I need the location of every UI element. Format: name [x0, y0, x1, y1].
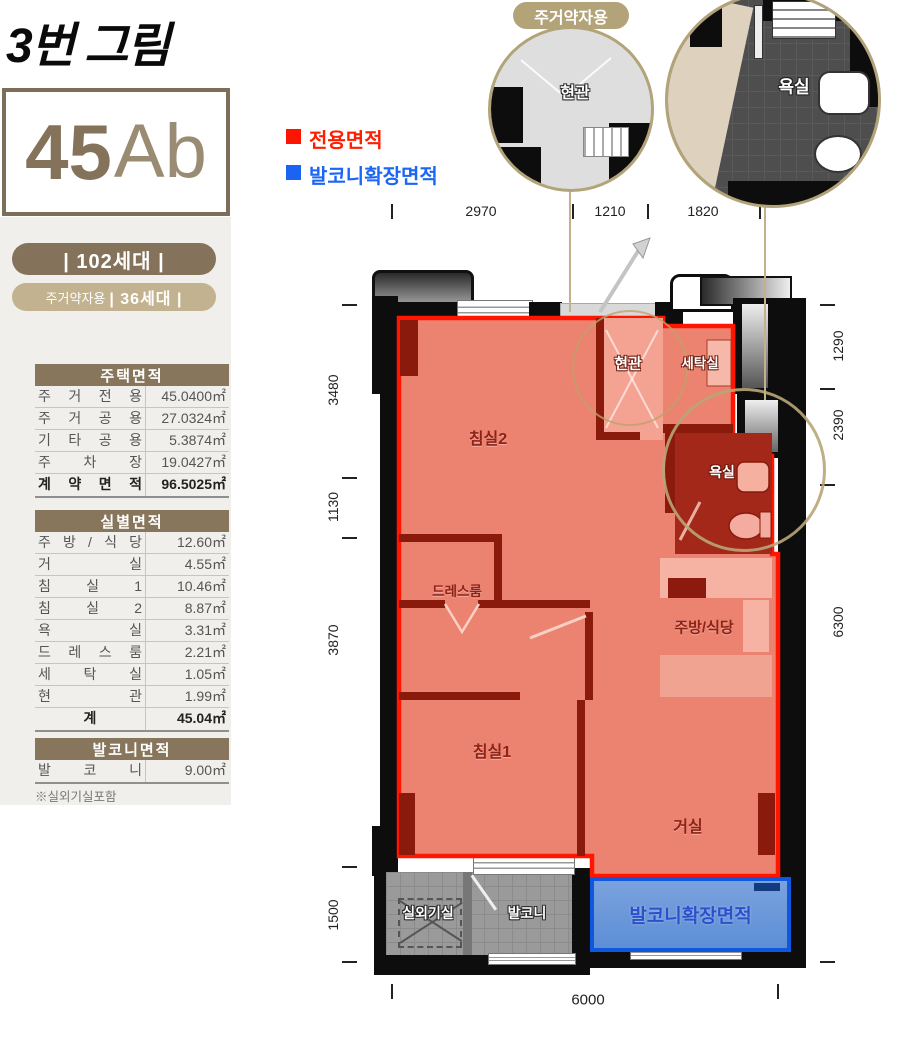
room-label-laundry: 세탁실: [681, 352, 718, 372]
callout-bath-label: 욕실: [778, 73, 809, 98]
room-label-bedroom2: 침실2: [469, 425, 507, 449]
wall: [491, 87, 523, 143]
entrance-callout-circle: 현관: [488, 26, 654, 192]
balcony-extension-label: 발코니확장면적: [629, 901, 751, 928]
bath-callout-circle: 욕실: [665, 0, 881, 208]
sink: [818, 71, 870, 115]
wall: [499, 147, 541, 191]
room-label-kitchen: 주방/식당: [674, 617, 733, 638]
room-label-living: 거실: [673, 813, 702, 837]
callout-leader-line: [764, 200, 766, 400]
front-door-swing: [600, 248, 640, 312]
room-label-bath: 욕실: [709, 462, 735, 482]
towel-bar: [754, 5, 763, 59]
room-label-dressroom: 드레스룸: [432, 580, 482, 600]
room-label-entrance: 현관: [614, 353, 642, 374]
kitchen-island: [743, 600, 769, 652]
callout-entrance-label: 현관: [560, 79, 589, 103]
wall: [690, 0, 722, 47]
floorplan-page: 3번 그림 45 Ab | 102세대 | 주거약자용 | 36세대 | 주택면…: [0, 0, 912, 1040]
dining-area: [660, 655, 772, 697]
balcony-extension-area: 발코니확장면적: [590, 877, 791, 952]
wall: [728, 181, 881, 208]
accessible-unit-tag: 주거약자용: [513, 2, 629, 29]
shoe-cabinet: [583, 127, 629, 157]
callout-leader-line: [569, 186, 571, 312]
window-insert: [754, 883, 780, 891]
bath-highlight-circle: [662, 388, 826, 552]
door-swing-line: [520, 59, 563, 96]
shelf: [772, 1, 836, 39]
room-label-bedroom1: 침실1: [473, 738, 511, 762]
room-label-outdoor-unit: 실외기실: [402, 903, 454, 923]
toilet: [814, 135, 862, 173]
stove: [668, 578, 706, 598]
room-label-balcony: 발코니: [508, 903, 547, 923]
